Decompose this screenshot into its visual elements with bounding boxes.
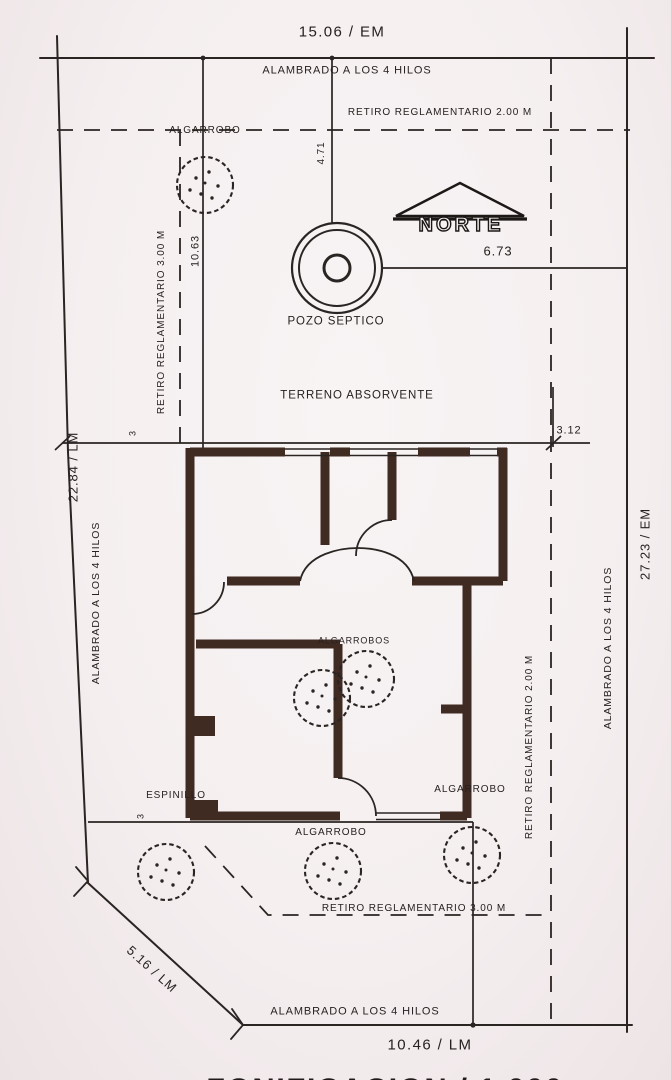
fence-label-west: ALAMBRADO A LOS 4 HILOS	[91, 522, 102, 685]
fence-label-south: ALAMBRADO A LOS 4 HILOS	[270, 1007, 439, 1018]
building-doors	[192, 520, 414, 816]
tree-label-southwest: ESPINILLO	[146, 791, 206, 801]
lot-boundary	[40, 28, 654, 1039]
tree-label-courtyard: ALGARROBOS	[318, 637, 390, 646]
setback-label-west: RETIRO REGLAMENTARIO 3.00 M	[157, 230, 167, 414]
tree-courtyard-2	[338, 651, 394, 707]
septic-well-label: POZO SEPTICO	[287, 316, 384, 328]
tree-southwest	[138, 844, 194, 900]
building-walls	[188, 448, 507, 818]
setback-label-south: RETIRO REGLAMENTARIO 3.00 M	[322, 904, 506, 914]
setback-label-north: RETIRO REGLAMENTARIO 2.00 M	[348, 108, 532, 118]
tree-south-center	[305, 843, 361, 899]
tree-label-northwest: ALGARROBO	[169, 126, 240, 136]
setback-label-east: RETIRO REGLAMENTARIO 2.00 M	[525, 655, 535, 839]
absorbent-terrain-label: TERRENO ABSORVENTE	[280, 390, 433, 402]
door-arc-room-west	[192, 582, 224, 614]
fence-label-north: ALAMBRADO A LOS 4 HILOS	[262, 66, 431, 77]
door-arc-hall	[356, 520, 392, 556]
dimension-west-boundary: 22.84 / LM	[67, 432, 80, 502]
tree-northwest	[177, 157, 233, 213]
dimension-north-boundary: 15.06 / EM	[299, 25, 386, 40]
dimension-house-to-west: 10.63	[191, 235, 202, 267]
dimension-east-boundary: 27.23 / EM	[639, 508, 652, 580]
dimension-house-to-east: 3.12	[556, 426, 581, 437]
sheet-title: ZONIFICACION / 1.000	[206, 1074, 563, 1080]
dimension-well-to-east: 6.73	[484, 245, 513, 258]
fence-label-east: ALAMBRADO A LOS 4 HILOS	[603, 567, 614, 730]
tree-southeast	[444, 827, 500, 883]
door-arc-patio	[338, 778, 376, 816]
wall-stub-southwest-corner	[188, 800, 218, 817]
setback-lines	[57, 58, 630, 1025]
dimension-south-boundary: 10.46 / LM	[388, 1038, 473, 1053]
dimension-well-to-fence: 4.71	[317, 141, 327, 164]
north-label: NORTE	[419, 215, 504, 235]
septic-well-symbol	[292, 223, 382, 313]
tree-label-southeast: ALGARROBO	[434, 785, 505, 795]
wall-stub-west	[190, 716, 215, 736]
tree-label-south-center: ALGARROBO	[295, 828, 366, 838]
site-plan-sheet: 15.06 / EM ALAMBRADO A LOS 4 HILOS RETIR…	[0, 0, 671, 1080]
setback-tick-south: 3	[137, 813, 146, 819]
setback-tick-west: 3	[129, 430, 138, 436]
